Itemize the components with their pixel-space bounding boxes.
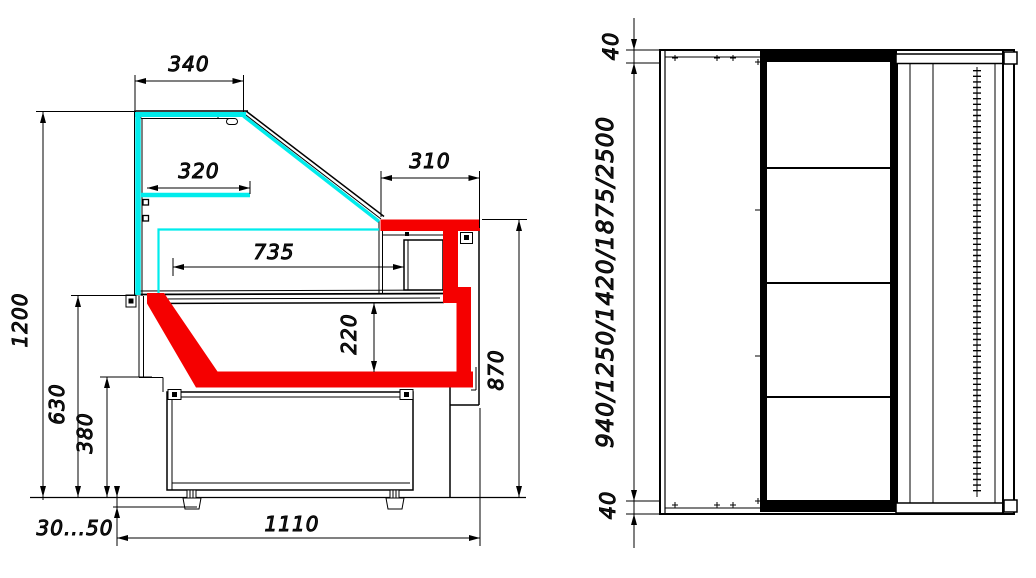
technical-drawing: 340 320 310 73: [0, 0, 1036, 578]
dim-label-340: 340: [168, 52, 209, 76]
counter-column-profile: [443, 230, 458, 303]
dim-label-870: 870: [484, 349, 508, 390]
dim-label-220: 220: [337, 313, 361, 354]
dim-label-1110: 1110: [265, 512, 320, 536]
adjustable-foot: [183, 490, 201, 509]
end-tab: [1004, 52, 1017, 64]
side-section-view: 340 320 310 73: [8, 52, 527, 546]
plan-structure: [660, 50, 1017, 514]
end-tab: [1004, 500, 1017, 512]
dim-label-1200: 1200: [8, 293, 32, 348]
dim-label-630: 630: [45, 383, 69, 424]
dim-deck-height-630: 630: [45, 296, 136, 498]
shelf-pin: [143, 216, 149, 222]
plan-dimensions: 40 940/1250/1420/1875/2500 40: [593, 18, 661, 548]
dim-canopy-width-340: 340: [135, 52, 244, 112]
dim-counter-height-870: 870: [482, 220, 527, 498]
machine-cabinet: [167, 392, 413, 490]
dim-label-310: 310: [409, 149, 450, 173]
dim-label-40-bottom: 40: [596, 491, 620, 520]
top-view: 40 940/1250/1420/1875/2500 40: [593, 18, 1017, 548]
glass-inclined-pane: [244, 116, 380, 222]
dim-counter-width-310: 310: [381, 149, 480, 228]
counter-column-step: [457, 287, 472, 375]
dim-label-40-top: 40: [599, 32, 623, 61]
cabinet-structure: [30, 111, 526, 509]
glass-elements: [135, 112, 379, 295]
basin-profile: [147, 293, 473, 388]
adjustable-foot: [386, 490, 404, 509]
dim-label-lengths: 940/1250/1420/1875/2500: [593, 116, 619, 448]
drawing-canvas: 340 320 310 73: [0, 0, 1036, 578]
dim-well-depth-220: 220: [337, 303, 377, 372]
shelf-pin: [143, 200, 149, 206]
dim-label-735: 735: [253, 240, 294, 264]
dim-label-380: 380: [73, 412, 97, 453]
dim-label-30-50: 30...50: [37, 516, 114, 540]
dim-label-320: 320: [178, 159, 219, 183]
counter-top-profile: [381, 220, 481, 232]
dim-overall-height-1200: 1200: [8, 112, 136, 501]
dim-leg-range-30-50: 30...50: [37, 486, 197, 546]
dim-shelf-width-320: 320: [147, 159, 250, 194]
lamp-fixture: [227, 119, 238, 125]
dim-base-height-380: 380: [73, 377, 152, 497]
dim-display-depth-735: 735: [173, 240, 404, 276]
